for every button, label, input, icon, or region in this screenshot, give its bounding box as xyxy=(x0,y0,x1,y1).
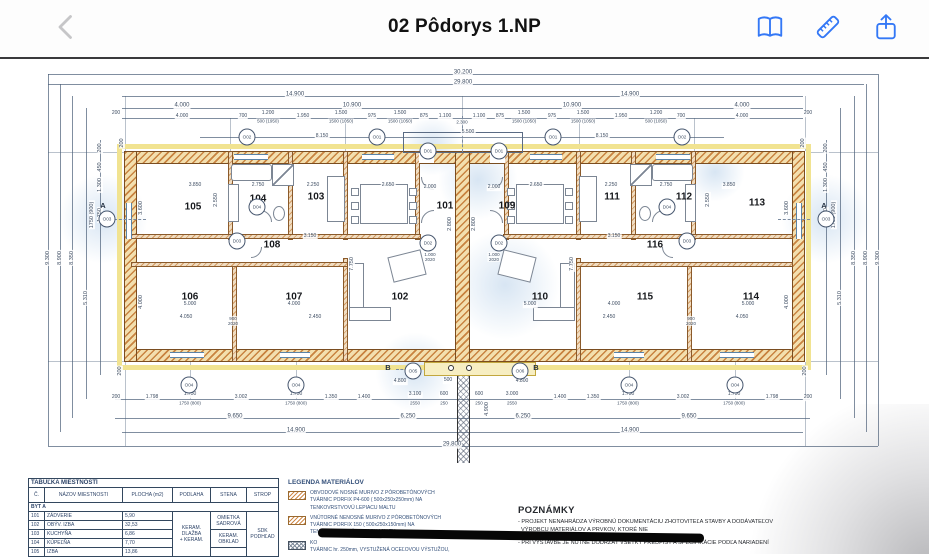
shower xyxy=(272,164,294,186)
window xyxy=(796,203,802,239)
dim-label: 3.850 xyxy=(188,183,203,189)
wall-interior xyxy=(131,262,348,267)
chair xyxy=(409,202,417,210)
room-label: 115 xyxy=(636,291,654,302)
cabinet xyxy=(228,184,239,222)
dim-label: 5.310 xyxy=(837,290,843,306)
cell-area: 5,90 xyxy=(123,512,173,521)
dim-label: 4.800 xyxy=(393,379,408,385)
wall-interior xyxy=(503,234,793,239)
cell-no: 104 xyxy=(29,539,45,548)
table-row: 105 IZBA 13,86 xyxy=(29,548,279,557)
cell-name: KUCHYŇA xyxy=(45,530,123,539)
dim-label: 200 xyxy=(803,395,813,401)
dim-label: 2550 xyxy=(409,400,421,405)
room-label: 102 xyxy=(391,291,410,302)
cell-stena xyxy=(211,548,247,557)
dim-label: 1.100 xyxy=(438,114,453,120)
cell-stena: KERAM. OBKLAD xyxy=(211,530,247,548)
circle-label: D01 xyxy=(491,143,508,160)
circle-label: D04 xyxy=(249,199,266,216)
chair xyxy=(507,216,515,224)
dim-label: 14.900 xyxy=(286,428,306,435)
extension-line xyxy=(125,96,126,151)
window xyxy=(656,154,690,160)
materials-legend: LEGENDA MATERIÁLOV OBVODOVÉ NOSNÉ MURIVO… xyxy=(288,479,520,557)
cell-name: ZÁDVERIE xyxy=(45,512,123,521)
dim-label: 10.900 xyxy=(562,103,582,110)
dim-label: 200 xyxy=(802,365,808,376)
dim-label: 1.300 xyxy=(823,177,829,193)
cell-no: 105 xyxy=(29,548,45,557)
dim-label: 1750 (900) xyxy=(89,201,95,230)
chair xyxy=(351,216,359,224)
dim-label: 3.600 xyxy=(784,200,790,216)
extension-line xyxy=(806,361,878,362)
cell-strop: SDK PODHĽAD xyxy=(247,512,279,557)
share-icon xyxy=(871,12,901,42)
dim-label: 4.000 xyxy=(173,103,190,110)
bookmarks-button[interactable] xyxy=(755,12,785,44)
dim-label: 5.000 xyxy=(741,302,756,308)
dim-label: 1.400 xyxy=(553,395,568,401)
dim-label: 2.450 xyxy=(602,315,617,321)
kitchen-counter xyxy=(327,176,345,222)
dim-label: 200 xyxy=(823,142,829,153)
dim-label: 2.550 xyxy=(213,192,219,208)
dim-label: 30.200 xyxy=(453,70,473,77)
section-marker: A xyxy=(99,202,106,210)
chair xyxy=(351,202,359,210)
legend-item: KO TVÁRNIC hr. 250mm, VYSTUŽENÁ OCEĽOVOU… xyxy=(288,540,520,555)
dim-label: 4.800 xyxy=(515,379,530,385)
circle-label: O03 xyxy=(818,211,835,228)
table-title: TABUĽKA MIESTNOSTÍ xyxy=(29,479,279,488)
dim-label: 9.650 xyxy=(680,414,697,421)
dim-label: 250 xyxy=(439,400,449,405)
sofa xyxy=(349,307,391,321)
circle-label: O01 xyxy=(545,129,562,146)
dim-label: 1.500 xyxy=(393,111,408,117)
porch-post xyxy=(466,365,472,371)
hatch-swatch-icon xyxy=(288,491,306,500)
chair xyxy=(351,188,359,196)
window xyxy=(280,352,310,358)
dim-label: 2550 xyxy=(506,400,518,405)
circle-label: O02 xyxy=(674,129,691,146)
dim-label: 700 xyxy=(238,114,248,120)
col-header: NÁZOV MIESTNOSTI xyxy=(45,488,123,503)
circle-label: D04 xyxy=(659,199,676,216)
cell-podlaha: KERAM. DLAŽBA + KERAM. xyxy=(173,512,211,557)
room-label: 108 xyxy=(263,239,282,250)
dim-label: 14.900 xyxy=(620,428,640,435)
dim-label: 600 xyxy=(439,392,449,398)
porch-post xyxy=(448,365,454,371)
section-marker: A xyxy=(820,202,827,210)
dim-label: 2.750 xyxy=(659,183,674,189)
window xyxy=(362,154,394,160)
dim-label: 1.950 xyxy=(614,114,629,120)
dim-label: 200 xyxy=(803,111,813,117)
dim-label: 500 (1950) xyxy=(256,118,280,123)
dim-label: 4.000 xyxy=(175,114,190,120)
dim-label: 3.000 xyxy=(505,392,520,398)
dim-label: 1.950 xyxy=(296,114,311,120)
crosshatch-swatch-icon xyxy=(288,541,306,550)
dim-label: 2.650 xyxy=(529,183,544,189)
dim-label: 3.100 xyxy=(408,392,423,398)
room-label: 113 xyxy=(748,197,766,208)
extension-line xyxy=(125,362,126,446)
circle-label: D01 xyxy=(420,143,437,160)
dim-label: 1.300 xyxy=(97,177,103,193)
dim-label: 14.900 xyxy=(620,92,640,99)
wall-interior xyxy=(687,262,692,362)
dim-label: 2.300 xyxy=(455,119,468,124)
col-header: PODLAHA xyxy=(173,488,211,503)
extension-line xyxy=(48,361,124,362)
cell-stena: OMIETKA SADROVÁ xyxy=(211,512,247,530)
measure-button[interactable] xyxy=(813,12,843,44)
sofa xyxy=(533,307,575,321)
dim-label: 900 2020 xyxy=(227,316,239,326)
wall-exterior-right xyxy=(792,151,805,362)
room-label: 109 xyxy=(498,200,517,211)
section-marker: B xyxy=(384,364,391,372)
share-button[interactable] xyxy=(871,12,901,44)
dim-label: 3.150 xyxy=(607,234,622,240)
window xyxy=(170,352,204,358)
notes-title: POZNÁMKY xyxy=(518,505,848,516)
dim-label: 3.600 xyxy=(138,200,144,216)
cell-name: KÚPEĽŇA xyxy=(45,539,123,548)
dim-label: 1.500 xyxy=(576,111,591,117)
circle-label: D03 xyxy=(229,233,246,250)
dim-label: 1750 (800) xyxy=(722,400,746,405)
dim-label: 450 xyxy=(97,161,103,172)
dim-label: 29.800 xyxy=(453,80,473,87)
dim-label: 1750 (800) xyxy=(616,400,640,405)
wall-interior xyxy=(232,262,237,362)
dim-label: 2.800 xyxy=(471,216,477,232)
dim-label: 1.400 xyxy=(357,395,372,401)
dim-label: 1500 (1050) xyxy=(570,118,596,123)
dim-label: 5.000 xyxy=(183,302,198,308)
circle-label: O04 xyxy=(288,377,305,394)
dim-label: 875 xyxy=(419,114,429,120)
dim-label: 2.250 xyxy=(604,183,619,189)
legend-title: LEGENDA MATERIÁLOV xyxy=(288,479,520,486)
dim-label: 500 (1050) xyxy=(644,118,668,123)
window xyxy=(530,154,562,160)
room-label: 105 xyxy=(184,201,203,212)
dim-label: 4.000 xyxy=(287,302,302,308)
dim-label: 2.000 xyxy=(487,185,502,191)
shower xyxy=(630,164,652,186)
circle-label: O04 xyxy=(727,377,744,394)
kitchen-counter xyxy=(579,176,597,222)
room-label: 103 xyxy=(307,191,326,202)
dim-label: 200 xyxy=(111,395,121,401)
dim-label: 6.250 xyxy=(514,414,531,421)
bathtub xyxy=(231,164,272,181)
dim-label: 2.650 xyxy=(381,183,396,189)
wall-interior xyxy=(576,262,793,267)
dim-label: 1.000 2020 xyxy=(423,252,436,262)
extension-line xyxy=(48,152,124,153)
dim-label: 9.650 xyxy=(226,414,243,421)
circle-label: O04 xyxy=(181,377,198,394)
dim-line xyxy=(826,140,827,375)
dim-label: 1500 (1050) xyxy=(387,118,413,123)
section-line-a xyxy=(114,219,146,220)
dim-label: 7.750 xyxy=(349,256,355,272)
dim-label: 1.798 xyxy=(765,395,780,401)
dim-label: 4.000 xyxy=(733,103,750,110)
dim-label: 1750 (800) xyxy=(178,400,202,405)
dim-label: 250 xyxy=(474,400,484,405)
bathtub xyxy=(652,164,693,181)
section-marker: B xyxy=(532,364,539,372)
dim-label: 450 xyxy=(823,161,829,172)
dim-label: 600 xyxy=(474,392,484,398)
cell-no: 103 xyxy=(29,530,45,539)
table-row: 101 ZÁDVERIE 5,90 KERAM. DLAŽBA + KERAM.… xyxy=(29,512,279,521)
dim-label: 4.000 xyxy=(138,294,144,310)
dim-line xyxy=(100,140,101,375)
dim-label: 29.800 xyxy=(442,442,462,449)
dim-label: 8.900 xyxy=(57,250,63,266)
dim-label: 200 xyxy=(117,365,123,376)
wall-center xyxy=(455,151,470,362)
dim-label: 8.150 xyxy=(595,134,610,140)
dim-label: 3.850 xyxy=(722,183,737,189)
circle-label: O04 xyxy=(621,377,638,394)
section-line-a xyxy=(778,219,810,220)
dim-label: 975 xyxy=(367,114,377,120)
dim-label: 3.002 xyxy=(234,395,249,401)
chair xyxy=(565,188,573,196)
cell-name: IZBA xyxy=(45,548,123,557)
circle-label: O06 xyxy=(512,363,529,380)
cell-no: 102 xyxy=(29,521,45,530)
dim-label: 10.900 xyxy=(342,103,362,110)
dim-label: 2.450 xyxy=(308,315,323,321)
room-label: 116 xyxy=(646,239,664,250)
dim-label: 4.000 xyxy=(607,302,622,308)
notes-line: - PROJEKT NENAHRÁDZA VÝROBNÚ DOKUMENTÁCI… xyxy=(518,519,848,526)
dim-label: 8.150 xyxy=(315,134,330,140)
ruler-icon xyxy=(813,12,843,42)
dim-label: 8.900 xyxy=(863,250,869,266)
col-header: PLOCHA (m2) xyxy=(123,488,173,503)
room-schedule-table: TABUĽKA MIESTNOSTÍ Č. NÁZOV MIESTNOSTI P… xyxy=(28,478,279,557)
wall-interior xyxy=(343,258,348,362)
dim-label: 1500 (1050) xyxy=(511,118,537,123)
dim-label: 4.000 xyxy=(735,114,750,120)
dim-label: 2.750 xyxy=(251,183,266,189)
room-label: 111 xyxy=(603,191,621,202)
dim-label: 1.200 xyxy=(649,111,664,117)
chair xyxy=(409,188,417,196)
circle-label: D03 xyxy=(679,233,696,250)
dining-table xyxy=(516,184,564,224)
cell-name: OBÝV. IZBA xyxy=(45,521,123,530)
wall-interior xyxy=(131,234,421,239)
dim-label: 975 xyxy=(547,114,557,120)
legend-item-text: OBVODOVÉ NOSNÉ MURIVO Z PÓROBETÓNOVÝCH T… xyxy=(310,490,435,512)
wall-interior xyxy=(576,258,581,362)
window xyxy=(614,352,644,358)
cell-area: 32,53 xyxy=(123,521,173,530)
cell-area: 13,86 xyxy=(123,548,173,557)
dim-label: 2.550 xyxy=(705,192,711,208)
toilet xyxy=(273,206,285,221)
dim-label: 14.900 xyxy=(285,92,305,99)
circle-label: D02 xyxy=(420,235,437,252)
notes-block: POZNÁMKY - PROJEKT NENAHRÁDZA VÝROBNÚ DO… xyxy=(518,505,848,533)
dim-label: 5.310 xyxy=(83,290,89,306)
dim-label: 900 2020 xyxy=(685,316,697,326)
toolbar-actions xyxy=(755,12,901,44)
hatch-swatch-icon xyxy=(288,516,306,525)
circle-label: O02 xyxy=(239,129,256,146)
cell-area: 6,86 xyxy=(123,530,173,539)
col-header: Č. xyxy=(29,488,45,503)
chair xyxy=(507,188,515,196)
dim-label: 1.350 xyxy=(586,395,601,401)
cell-no: 101 xyxy=(29,512,45,521)
dim-label: 3.002 xyxy=(676,395,691,401)
dim-label: 2.000 xyxy=(423,185,438,191)
dim-label: 4.050 xyxy=(735,315,750,321)
col-header: STROP xyxy=(247,488,279,503)
dim-label: 2.800 xyxy=(447,216,453,232)
chair xyxy=(565,216,573,224)
dim-label: 4.050 xyxy=(179,315,194,321)
circle-label: D02 xyxy=(491,235,508,252)
dim-label: 9.300 xyxy=(875,250,881,266)
pdf-page-canvas[interactable]: TABUĽKA MIESTNOSTÍ Č. NÁZOV MIESTNOSTI P… xyxy=(0,0,929,554)
extension-line xyxy=(806,152,878,153)
table-row: 103 KUCHYŇA 6,86 KERAM. OBKLAD xyxy=(29,530,279,539)
circle-label: O01 xyxy=(369,129,386,146)
window xyxy=(234,154,268,160)
dim-label: 9.300 xyxy=(45,250,51,266)
dim-label: 700 xyxy=(676,114,686,120)
toilet xyxy=(639,206,651,221)
chair xyxy=(409,216,417,224)
col-header: STENA xyxy=(211,488,247,503)
dim-label: 1.200 xyxy=(261,111,276,117)
dim-label: 4.900 xyxy=(484,401,490,417)
window xyxy=(720,352,754,358)
dim-label: 1.000 2020 xyxy=(487,252,500,262)
dim-label: 1.798 xyxy=(145,395,160,401)
dim-label: 5.000 xyxy=(523,302,538,308)
dim-label: 7.750 xyxy=(569,256,575,272)
wall-exterior-left xyxy=(124,151,137,362)
circle-label: O03 xyxy=(99,211,116,228)
cabinet xyxy=(685,184,696,222)
chair xyxy=(565,202,573,210)
dim-label: 200 xyxy=(119,137,125,148)
dim-label: 6.250 xyxy=(399,414,416,421)
screen: { "toolbar": { "title": "02 Pôdorys 1.NP… xyxy=(0,0,929,554)
window xyxy=(126,203,132,239)
circle-label: O05 xyxy=(405,363,422,380)
dim-label: 500 xyxy=(443,378,453,384)
dim-label: 8.350 xyxy=(851,250,857,266)
dim-label: 1500 (1050) xyxy=(328,118,354,123)
dim-label: 5.500 xyxy=(461,130,476,136)
toolbar: 02 Pôdorys 1.NP xyxy=(0,0,929,59)
dim-label: 3.150 xyxy=(303,234,318,240)
dim-label: 200 xyxy=(800,137,806,148)
dim-label: 1.100 xyxy=(472,114,487,120)
dim-label: 200 xyxy=(97,142,103,153)
dim-label: 1.350 xyxy=(324,395,339,401)
dining-table xyxy=(360,184,408,224)
dim-label: 8.350 xyxy=(69,250,75,266)
room-label: 101 xyxy=(436,200,455,211)
dim-label: 1.500 xyxy=(517,111,532,117)
room-label: 112 xyxy=(675,191,693,202)
legend-item-text: KO TVÁRNIC hr. 250mm, VYSTUŽENÁ OCEĽOVOU… xyxy=(310,540,449,555)
dim-label: 2.250 xyxy=(306,183,321,189)
dim-label: 875 xyxy=(495,114,505,120)
dim-label: 200 xyxy=(111,111,121,117)
section-label: BYT A xyxy=(29,503,279,512)
legend-item: OBVODOVÉ NOSNÉ MURIVO Z PÓROBETÓNOVÝCH T… xyxy=(288,490,520,512)
cell-area: 7,70 xyxy=(123,539,173,548)
dim-label: 4.000 xyxy=(784,294,790,310)
dim-label: 1750 (800) xyxy=(284,400,308,405)
dim-label: 1.500 xyxy=(334,111,349,117)
book-icon xyxy=(755,12,785,42)
